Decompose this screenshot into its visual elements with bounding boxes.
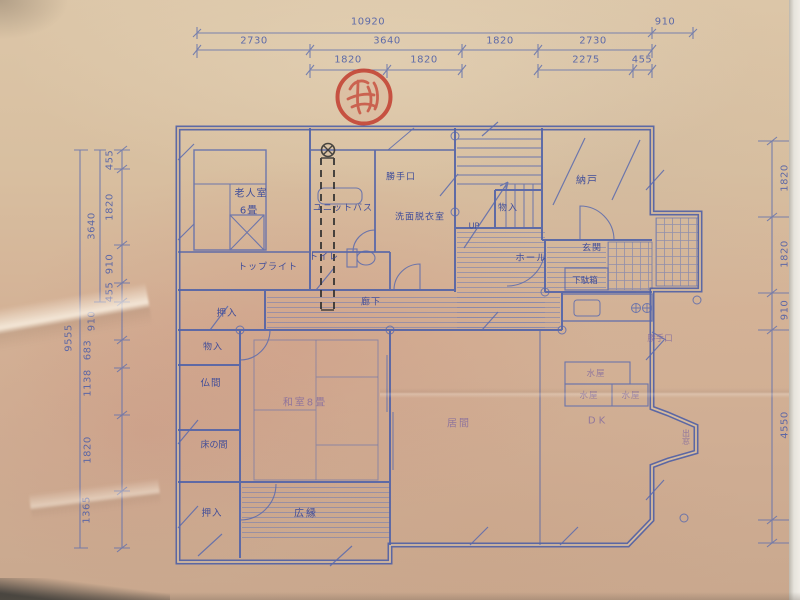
dim-top-r1-1: 3640	[373, 36, 400, 47]
dim-top-right: 910	[655, 17, 676, 28]
photo-edge-right	[789, 0, 800, 600]
dim-top-r2-1: 1820	[410, 55, 437, 66]
floor-plan-photo: 老人室 6畳 トップライト ユニットバス 勝手口 洗面脱衣室 トイレ 物入 UP…	[0, 0, 800, 600]
dim-left-c7: 1820	[83, 436, 94, 463]
dim-top-r1-2: 1820	[486, 36, 513, 47]
dim-top-r2-2: 2275	[572, 55, 599, 66]
dim-top-r1-0: 2730	[240, 36, 267, 47]
dim-left-c5: 683	[83, 340, 94, 361]
dim-top-r1-3: 2730	[579, 36, 606, 47]
dim-left-c1: 1820	[105, 193, 116, 220]
dim-left-c2: 910	[105, 254, 116, 275]
dim-top-r2-3: 455	[632, 55, 653, 66]
dim-left-c6: 1138	[83, 369, 94, 396]
dim-left-group: 3640	[87, 212, 98, 239]
dim-left-c0: 455	[105, 150, 116, 171]
photo-shadow-bottom	[0, 592, 800, 600]
dim-top-r2-0: 1820	[334, 55, 361, 66]
paper-fold-right	[380, 388, 800, 398]
photo-shadow-top-left	[0, 0, 70, 40]
dim-top-overall: 10920	[351, 17, 385, 28]
